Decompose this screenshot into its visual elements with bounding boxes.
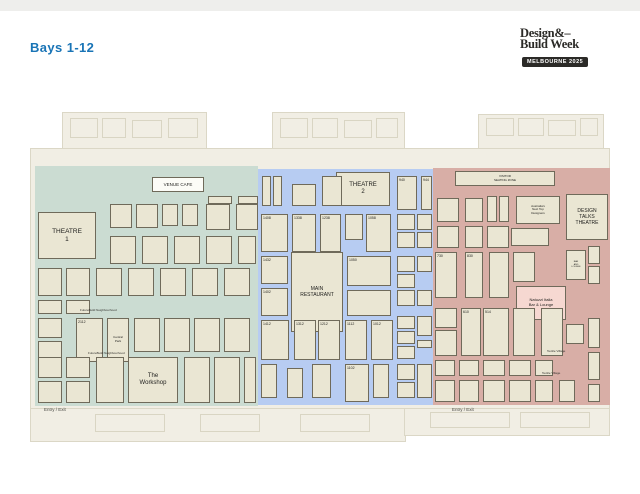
booth[interactable] xyxy=(588,246,600,264)
booth[interactable] xyxy=(160,268,186,296)
booth[interactable] xyxy=(417,232,432,248)
booth[interactable] xyxy=(513,252,535,282)
booth-1050[interactable]: 1050 xyxy=(347,256,391,286)
booth[interactable] xyxy=(435,330,457,356)
booth[interactable] xyxy=(136,204,158,228)
entry-exit-label: Entry / Exit xyxy=(452,407,474,412)
booth-1312[interactable]: 1312 xyxy=(294,320,316,360)
booth[interactable] xyxy=(397,331,415,344)
entry-exit-label: Entry / Exit xyxy=(44,407,66,412)
booth[interactable] xyxy=(128,268,154,296)
theatre-2[interactable]: THEATRE 2 xyxy=(336,172,390,206)
hall-wall-lines xyxy=(376,118,398,138)
booth-1412[interactable]: 1412 xyxy=(261,320,289,360)
booth[interactable] xyxy=(397,364,415,380)
booth[interactable] xyxy=(459,380,479,402)
booth-1402[interactable]: 1402 xyxy=(261,288,288,316)
booth[interactable] xyxy=(499,196,509,222)
zone-label: Textile Village xyxy=(547,349,565,353)
booth[interactable] xyxy=(192,268,218,296)
booth[interactable] xyxy=(66,381,90,403)
booth[interactable] xyxy=(347,290,391,316)
booth[interactable] xyxy=(588,352,600,380)
booth[interactable] xyxy=(373,364,389,398)
booth[interactable] xyxy=(417,290,432,306)
booth[interactable] xyxy=(206,204,230,230)
booth[interactable] xyxy=(236,204,258,230)
booth[interactable] xyxy=(437,198,459,222)
visitor-seating-zone[interactable]: VISITOR SEATING ZONE xyxy=(455,171,555,186)
booth[interactable] xyxy=(273,176,282,206)
floor-plan: VENUE CAFETHEATRE 12112Central ParkThe W… xyxy=(0,0,640,494)
booth[interactable] xyxy=(38,318,62,338)
booth[interactable] xyxy=(292,184,316,206)
zone-label: FutureBuild Neighbourhood xyxy=(80,308,117,312)
booth[interactable] xyxy=(182,204,198,226)
booth[interactable] xyxy=(397,256,415,272)
zone-label: Textile Village xyxy=(542,371,560,375)
booth[interactable] xyxy=(487,196,497,222)
design-talks-theatre[interactable]: DESIGN TALKS THEATRE xyxy=(566,194,608,240)
booth-730[interactable]: 730 xyxy=(435,252,457,298)
booth[interactable] xyxy=(110,204,132,228)
booth[interactable] xyxy=(174,236,200,264)
booth[interactable] xyxy=(509,360,531,376)
booth[interactable] xyxy=(164,318,190,352)
booth[interactable] xyxy=(417,316,432,336)
hall-wall-lines xyxy=(280,118,308,138)
hall-wall-lines xyxy=(168,118,198,138)
booth[interactable] xyxy=(224,268,250,296)
booth[interactable] xyxy=(96,357,124,403)
booth-1058[interactable]: 1058 xyxy=(366,214,391,252)
booth[interactable] xyxy=(287,368,303,398)
booth[interactable] xyxy=(588,266,600,284)
booth[interactable] xyxy=(38,300,62,314)
booth[interactable] xyxy=(206,236,232,264)
booth-1432[interactable]: 1432 xyxy=(261,256,288,284)
hall-wall-lines xyxy=(102,118,126,138)
booth[interactable] xyxy=(489,252,509,298)
booth[interactable] xyxy=(509,380,531,402)
booth-1408[interactable]: 1408 xyxy=(261,214,288,252)
booth[interactable] xyxy=(322,176,342,206)
hall-wall-lines xyxy=(312,118,338,138)
booth[interactable] xyxy=(262,176,271,206)
booth[interactable] xyxy=(110,236,136,264)
booth[interactable] xyxy=(244,357,256,403)
booth-1212[interactable]: 1212 xyxy=(318,320,340,360)
booth[interactable] xyxy=(397,382,415,398)
booth[interactable] xyxy=(588,384,600,402)
booth[interactable] xyxy=(214,357,240,403)
booth-bar-and-lounge[interactable]: BAR AND LOUNGE xyxy=(566,250,586,280)
hall-wall-lines xyxy=(132,120,162,138)
booth[interactable] xyxy=(194,318,220,352)
booth[interactable] xyxy=(435,380,455,402)
booth-944[interactable]: 944 xyxy=(421,176,432,210)
booth[interactable] xyxy=(511,228,549,246)
booth[interactable] xyxy=(437,226,459,248)
booth[interactable] xyxy=(66,268,90,296)
booth[interactable] xyxy=(66,357,90,378)
booth[interactable] xyxy=(459,360,479,376)
hall-wall-lines xyxy=(548,120,576,136)
booth[interactable] xyxy=(38,381,62,403)
booth[interactable] xyxy=(38,357,62,378)
booth-1112[interactable]: 1112 xyxy=(345,320,367,360)
booth[interactable] xyxy=(483,360,505,376)
booth[interactable] xyxy=(417,364,432,398)
hall-wall-lines xyxy=(70,118,98,138)
booth[interactable] xyxy=(435,308,457,328)
booth-1102[interactable]: 1102 xyxy=(345,364,369,402)
the-workshop[interactable]: The Workshop xyxy=(128,357,178,403)
booth[interactable] xyxy=(588,318,600,348)
hall-wall-lines xyxy=(95,414,165,432)
booth[interactable] xyxy=(312,364,331,398)
theatre-1[interactable]: THEATRE 1 xyxy=(38,212,96,259)
hall-wall-lines xyxy=(430,412,510,428)
booth[interactable] xyxy=(96,268,122,296)
booth[interactable] xyxy=(397,346,415,359)
booth[interactable] xyxy=(134,318,160,352)
booth-australias-next-top-designers[interactable]: Australia's Next Top Designers xyxy=(516,196,560,224)
booth[interactable] xyxy=(535,380,553,402)
booth[interactable] xyxy=(397,214,415,230)
booth[interactable] xyxy=(465,226,483,248)
booth[interactable] xyxy=(224,318,250,352)
booth[interactable] xyxy=(417,340,432,348)
booth-830[interactable]: 830 xyxy=(465,252,483,298)
booth-514[interactable]: 514 xyxy=(483,308,509,356)
page: Bays 1-12 Design&– Build Week MELBOURNE … xyxy=(0,0,640,494)
booth[interactable] xyxy=(417,214,432,230)
booth[interactable] xyxy=(142,236,168,264)
booth-1238[interactable]: 1238 xyxy=(320,214,341,252)
booth-940[interactable]: 940 xyxy=(397,176,417,210)
hall-wall-lines xyxy=(200,414,260,432)
booth[interactable] xyxy=(566,324,584,344)
booth[interactable] xyxy=(397,232,415,248)
hall-wall-lines xyxy=(518,118,544,136)
booth-1338[interactable]: 1338 xyxy=(292,214,316,252)
booth[interactable] xyxy=(162,204,178,226)
booth-610[interactable]: 610 xyxy=(461,308,481,356)
booth[interactable] xyxy=(435,360,455,376)
booth[interactable] xyxy=(513,308,535,356)
booth-central-park[interactable]: Central Park xyxy=(107,318,129,362)
booth[interactable] xyxy=(238,236,256,264)
booth[interactable] xyxy=(184,357,210,403)
booth[interactable] xyxy=(38,268,62,296)
hall-wall-lines xyxy=(486,118,514,136)
booth[interactable] xyxy=(483,380,505,402)
booth[interactable] xyxy=(397,274,415,288)
booth[interactable] xyxy=(261,364,277,398)
hall-wall-lines xyxy=(520,412,590,428)
booth[interactable] xyxy=(559,380,575,402)
booth[interactable] xyxy=(238,196,258,204)
booth[interactable] xyxy=(397,316,415,329)
booth[interactable] xyxy=(487,226,509,248)
hall-wall-lines xyxy=(344,120,372,138)
booth[interactable] xyxy=(465,198,483,222)
booth[interactable] xyxy=(345,214,363,240)
booth[interactable] xyxy=(397,290,415,306)
booth-1012[interactable]: 1012 xyxy=(371,320,393,360)
hall-wall-lines xyxy=(580,118,598,136)
booth[interactable] xyxy=(417,256,432,272)
zone-label: FutureBuild Neighbourhood xyxy=(88,351,125,355)
booth-2112[interactable]: 2112 xyxy=(76,318,103,362)
venue-cafe[interactable]: VENUE CAFE xyxy=(152,177,204,192)
booth[interactable] xyxy=(208,196,232,204)
hall-wall-lines xyxy=(300,414,370,432)
